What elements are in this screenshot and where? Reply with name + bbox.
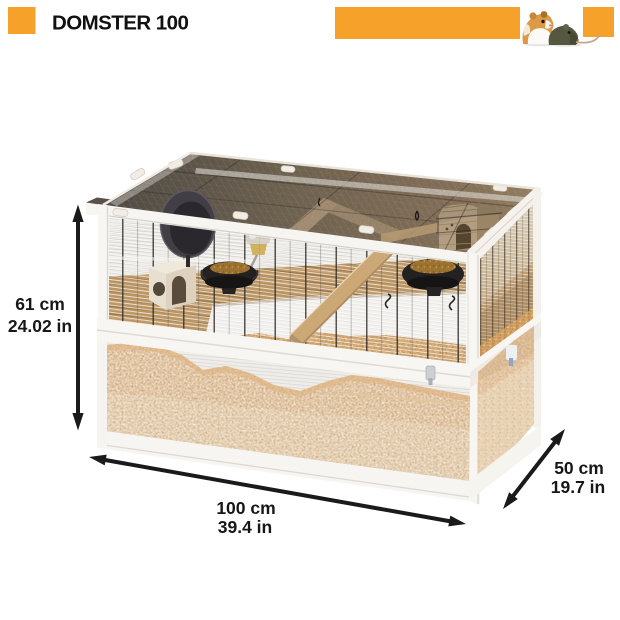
svg-text:61 cm: 61 cm: [15, 294, 65, 314]
svg-text:19.7 in: 19.7 in: [551, 477, 605, 497]
svg-text:100 cm: 100 cm: [216, 498, 275, 518]
svg-text:DOMSTER 100: DOMSTER 100: [52, 12, 188, 35]
svg-text:39.4 in: 39.4 in: [218, 517, 272, 537]
svg-text:50 cm: 50 cm: [554, 458, 604, 478]
svg-text:24.02 in: 24.02 in: [8, 316, 72, 336]
